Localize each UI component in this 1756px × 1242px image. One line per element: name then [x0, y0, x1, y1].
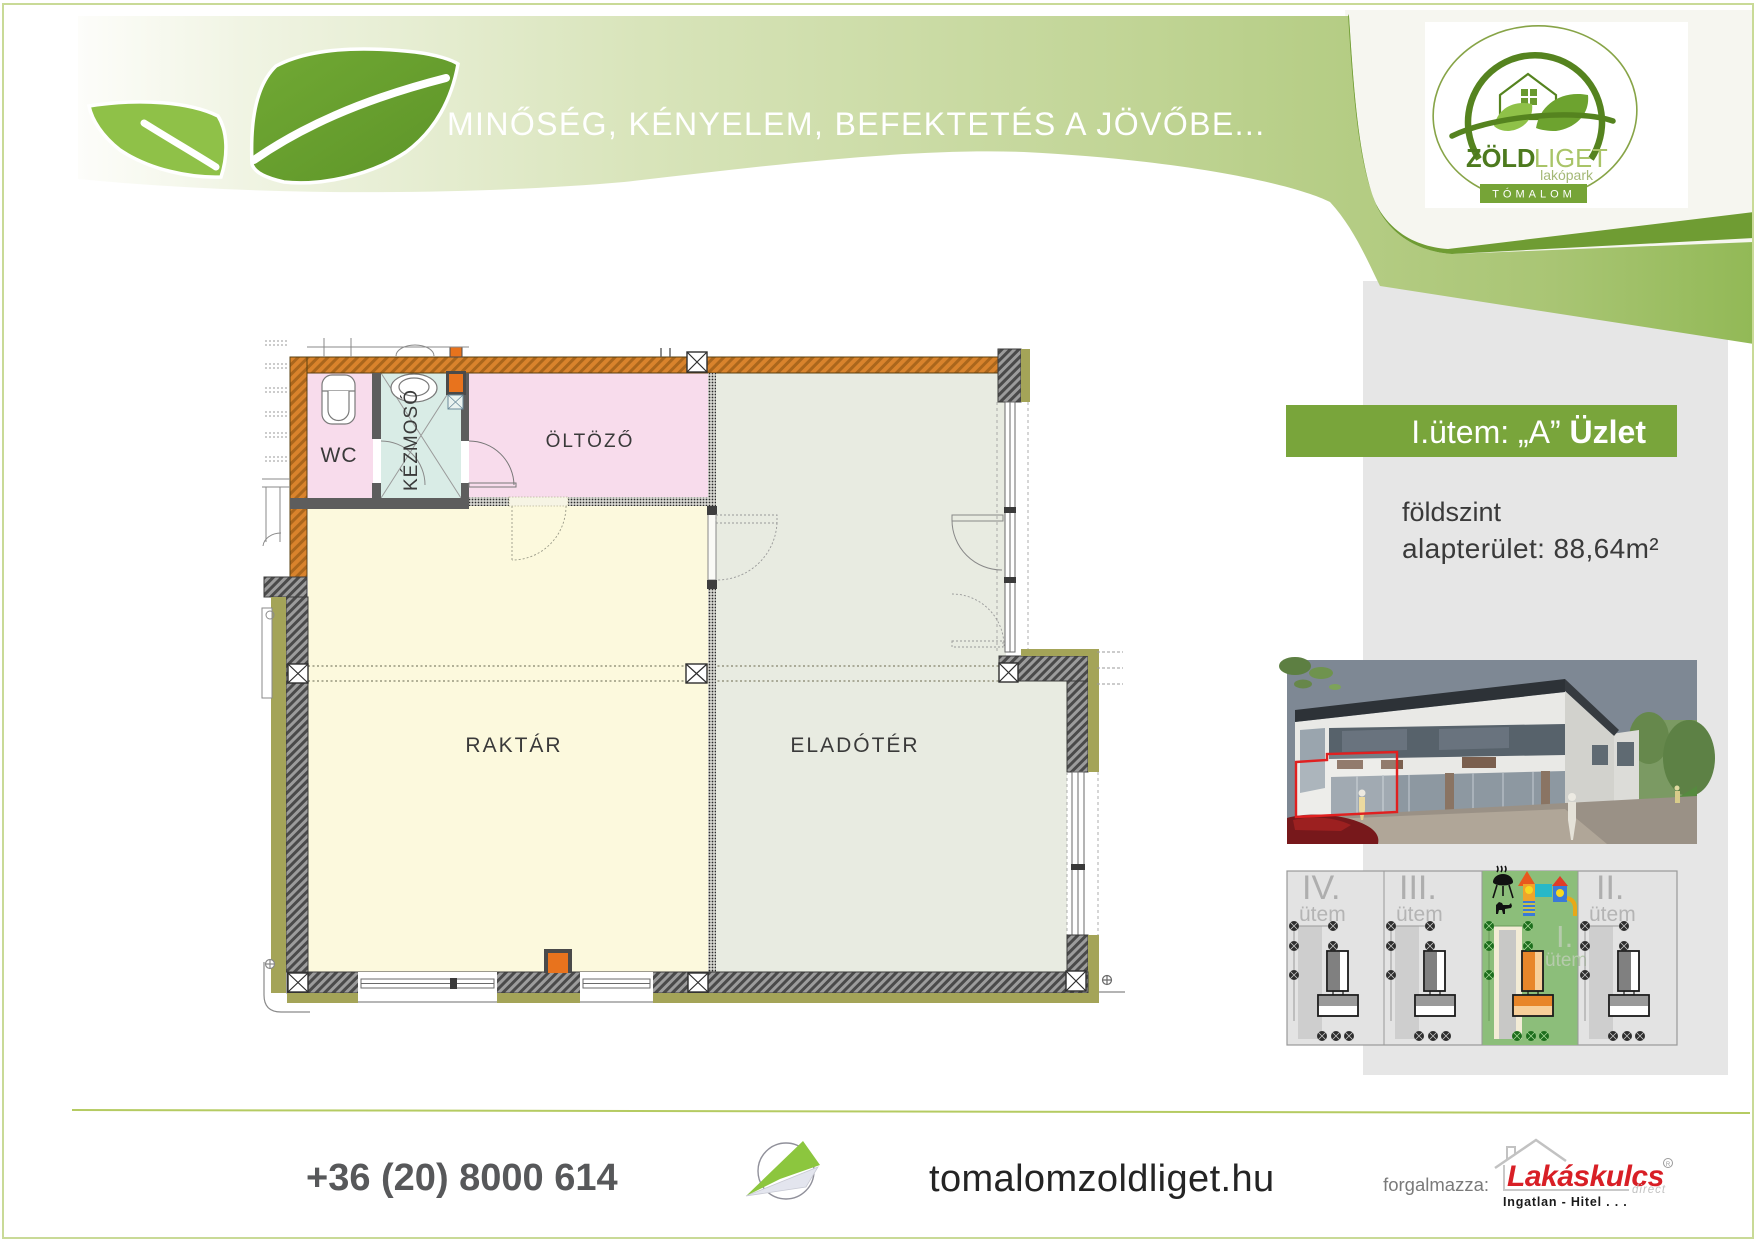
- svg-text:RAKTÁR: RAKTÁR: [465, 734, 562, 757]
- svg-text:I.: I.: [1556, 919, 1573, 954]
- svg-text:földszint: földszint: [1402, 497, 1502, 527]
- svg-text:KÉZMOSÓ: KÉZMOSÓ: [400, 389, 422, 491]
- svg-text:Ingatlan - Hitel . . .: Ingatlan - Hitel . . .: [1503, 1195, 1628, 1209]
- svg-text:WC: WC: [321, 444, 358, 467]
- svg-text:ELADÓTÉR: ELADÓTÉR: [790, 734, 919, 757]
- svg-text:IV.: IV.: [1302, 869, 1340, 907]
- svg-text:ütem: ütem: [1299, 903, 1346, 926]
- svg-text:ütem: ütem: [1396, 903, 1443, 926]
- svg-text:tomalomzoldliget.hu: tomalomzoldliget.hu: [929, 1158, 1275, 1200]
- svg-text:+36 (20) 8000 614: +36 (20) 8000 614: [306, 1157, 618, 1199]
- svg-text:lakópark: lakópark: [1540, 167, 1594, 183]
- svg-text:II.: II.: [1596, 869, 1624, 907]
- svg-text:direct: direct: [1632, 1184, 1666, 1196]
- svg-text:TÓMALOM: TÓMALOM: [1492, 188, 1576, 201]
- svg-text:MINŐSÉG, KÉNYELEM, BEFEKTETÉS: MINŐSÉG, KÉNYELEM, BEFEKTETÉS A JÖVŐBE..…: [447, 106, 1266, 142]
- svg-text:ütem: ütem: [1589, 903, 1636, 926]
- svg-text:ütem: ütem: [1545, 950, 1587, 971]
- svg-text:forgalmazza:: forgalmazza:: [1383, 1174, 1489, 1195]
- svg-text:R: R: [1666, 1162, 1671, 1168]
- svg-text:alapterület: 88,64m²: alapterület: 88,64m²: [1402, 533, 1659, 564]
- svg-text:ÖLTÖZŐ: ÖLTÖZŐ: [546, 430, 635, 452]
- svg-text:III.: III.: [1399, 869, 1437, 907]
- svg-text:I.ütem: „A” Üzlet: I.ütem: „A” Üzlet: [1411, 414, 1646, 450]
- svg-text:ZÖLD: ZÖLD: [1466, 144, 1535, 173]
